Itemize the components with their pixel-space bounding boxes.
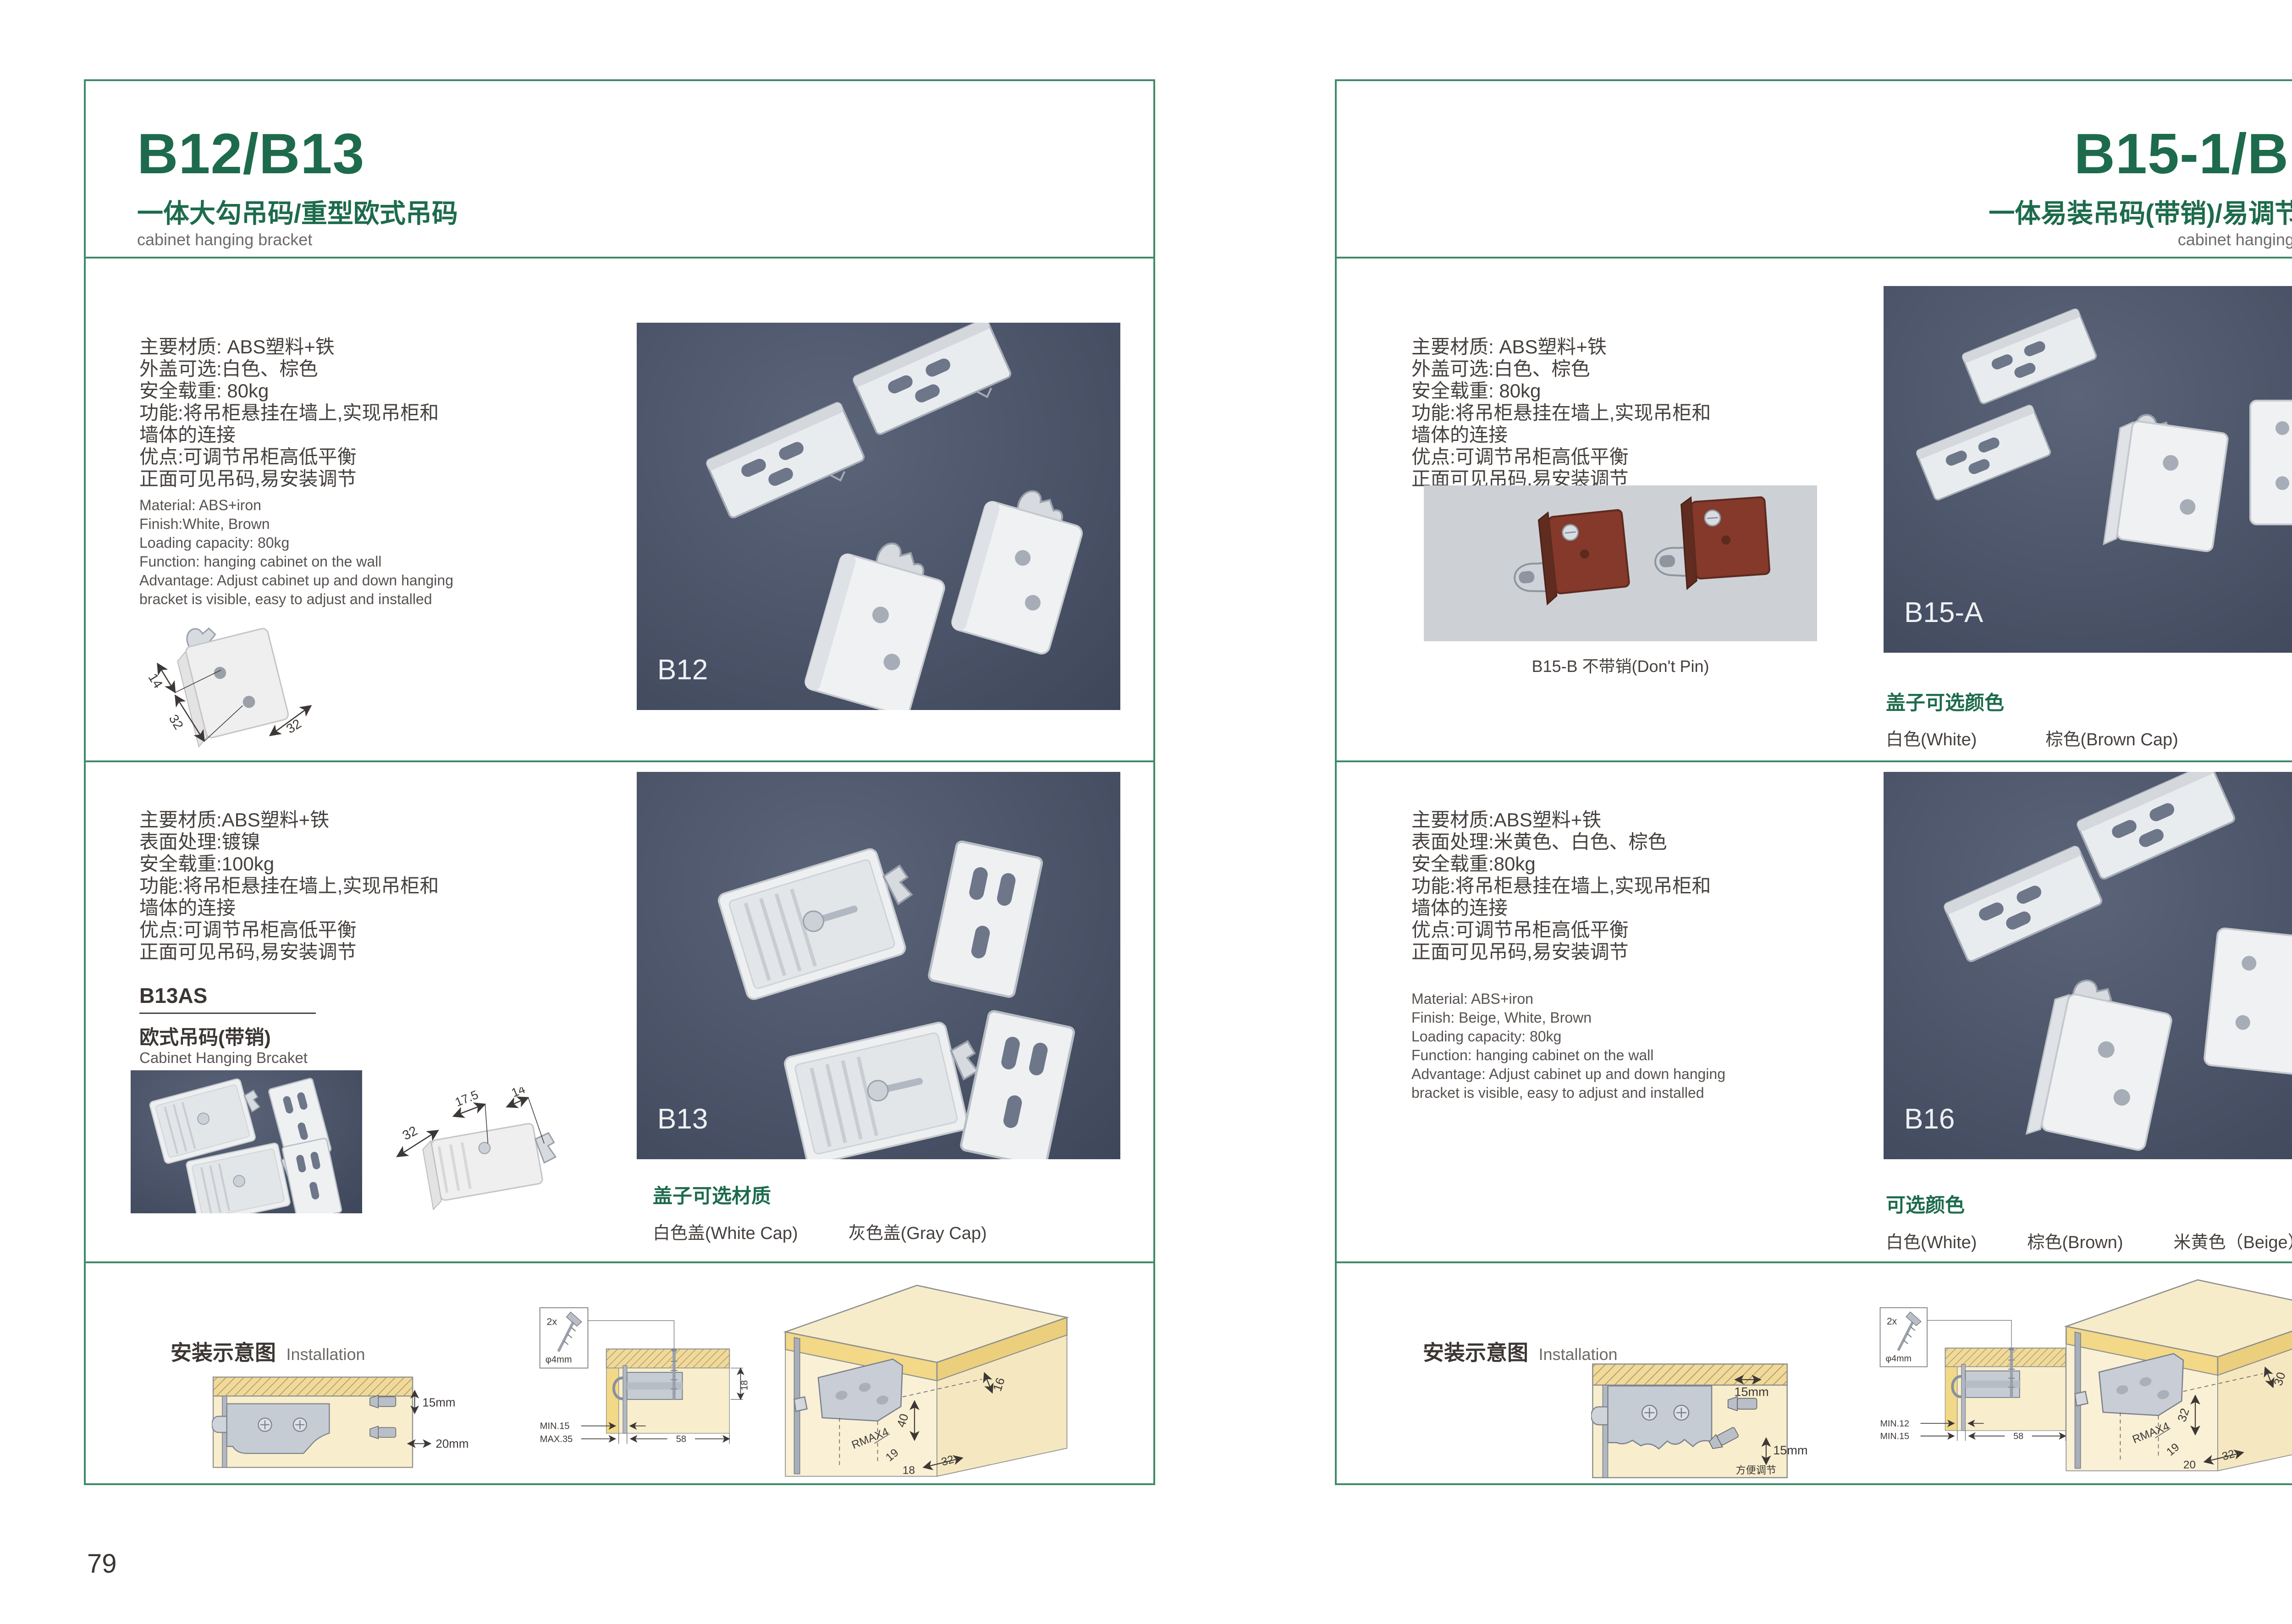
b13-photo-scene bbox=[637, 772, 1120, 1159]
installation-title: 安装示意图 Installation bbox=[171, 1336, 365, 1366]
spec-line: 安全载重: 80kg bbox=[1411, 380, 1711, 402]
caps-options: 白色盖(White Cap) 灰色盖(Gray Cap) bbox=[653, 1219, 1037, 1244]
brown-bracket-icon bbox=[1651, 492, 1770, 591]
dim-label: 15mm bbox=[1734, 1385, 1769, 1399]
hanging-bracket-icon bbox=[2250, 401, 2292, 524]
spec-line: 功能:将吊柜悬挂在墙上,实现吊柜和 bbox=[1411, 875, 1711, 897]
b16-product-photo: B16 bbox=[1884, 772, 2292, 1159]
screw-diameter: φ4mm bbox=[545, 1355, 572, 1365]
spec-line: Material: ABS+iron bbox=[1411, 990, 1725, 1008]
spec-line: 功能:将吊柜悬挂在墙上,实现吊柜和 bbox=[1411, 402, 1711, 424]
color-option: 棕色(Brown) bbox=[2027, 1228, 2123, 1253]
spec-line: 正面可见吊码,易安装调节 bbox=[139, 941, 439, 963]
screw-count: 2x bbox=[1887, 1316, 1897, 1327]
wall-rail-icon bbox=[2076, 772, 2236, 880]
b13as-photo-scene bbox=[131, 1070, 362, 1213]
divider bbox=[86, 1261, 1153, 1263]
cabinet-section bbox=[606, 1349, 730, 1433]
hanging-bracket-icon bbox=[950, 479, 1090, 655]
spec-line: Material: ABS+iron bbox=[139, 496, 453, 515]
spec-line: 墙体的连接 bbox=[139, 897, 439, 919]
installation-title-en: Installation bbox=[286, 1345, 365, 1364]
page-right: B15-1/B16 一体易装吊码(带销)/易调节吊码 cabinet hangi… bbox=[1335, 79, 2292, 1485]
b12-specs-cn: 主要材质: ABS塑料+铁 外盖可选:白色、棕色 安全载重: 80kg 功能:将… bbox=[139, 336, 439, 490]
spec-line: 优点:可调节吊柜高低平衡 bbox=[1411, 919, 1711, 941]
divider bbox=[86, 760, 1153, 762]
b12-install-side-diagram: 15mm 20mm bbox=[212, 1365, 478, 1470]
cap-option: 白色盖(White Cap) bbox=[653, 1219, 798, 1244]
page-caption: cabinet hanging bracket bbox=[137, 230, 312, 249]
product-label: B15-A bbox=[1904, 596, 1983, 629]
cabinet-perspective bbox=[785, 1285, 1067, 1476]
dim-label: MIN.15 bbox=[1880, 1431, 1910, 1441]
spec-line: Function: hanging cabinet on the wall bbox=[1411, 1046, 1725, 1065]
dim-label: MAX.35 bbox=[540, 1434, 573, 1444]
caps-title: 盖子可选颜色 bbox=[1886, 687, 2004, 716]
dim-label: 32 bbox=[284, 716, 304, 737]
model-name-en: Cabinet Hanging Brcaket bbox=[139, 1049, 308, 1067]
spec-line: bracket is visible, easy to adjust and i… bbox=[1411, 1084, 1725, 1102]
diagram-note: 方便调节 bbox=[1736, 1464, 1776, 1476]
b12-dimension-photo: 14 32 32 bbox=[129, 613, 340, 749]
page-caption: cabinet hanging bracket bbox=[2178, 230, 2292, 249]
spec-line: 墙体的连接 bbox=[139, 424, 439, 446]
spec-line: 功能:将吊柜悬挂在墙上,实现吊柜和 bbox=[139, 402, 439, 424]
wall-rail-icon bbox=[705, 402, 869, 527]
b15-specs-cn: 主要材质: ABS塑料+铁 外盖可选:白色、棕色 安全载重: 80kg 功能:将… bbox=[1411, 336, 1711, 490]
b12-photo-scene bbox=[637, 323, 1120, 710]
spec-line: 主要材质: ABS塑料+铁 bbox=[1411, 336, 1711, 358]
hanging-bracket-icon bbox=[2104, 411, 2229, 559]
mechanism-plate-icon bbox=[717, 841, 928, 1001]
cabinet-section bbox=[1591, 1364, 1787, 1478]
spec-line: 外盖可选:白色、棕色 bbox=[139, 358, 439, 380]
b15b-product-photo bbox=[1424, 485, 1817, 641]
spec-line: 安全载重:80kg bbox=[1411, 853, 1711, 875]
brown-bracket-icon bbox=[1508, 505, 1631, 607]
divider bbox=[1337, 257, 2292, 259]
spec-line: Loading capacity: 80kg bbox=[1411, 1027, 1725, 1046]
dim-label: 32 bbox=[166, 712, 186, 732]
cap-option: 灰色盖(Gray Cap) bbox=[848, 1219, 987, 1244]
dim-label: 18 bbox=[903, 1464, 915, 1477]
b12-install-perspective-diagram: 16 40 RMAX4 19 18 32 bbox=[757, 1277, 1078, 1477]
page-number-left: 79 bbox=[87, 1548, 117, 1579]
mechanism-plate-icon bbox=[783, 1016, 991, 1159]
page-subtitle: 一体大勾吊码/重型欧式吊码 bbox=[137, 193, 458, 230]
product-label: B16 bbox=[1904, 1103, 1955, 1135]
wall-rail-icon bbox=[1961, 308, 2097, 405]
spec-line: 功能:将吊柜悬挂在墙上,实现吊柜和 bbox=[139, 875, 439, 897]
dim-label: 20mm bbox=[435, 1438, 468, 1451]
b12-product-photo: B12 bbox=[637, 323, 1120, 710]
dim-label: 14 bbox=[145, 671, 165, 691]
spec-line: 表面处理:米黄色、白色、棕色 bbox=[1411, 831, 1711, 853]
model-underline bbox=[139, 1013, 316, 1014]
spec-line: 墙体的连接 bbox=[1411, 897, 1711, 919]
b16-install-perspective-diagram: 30 32 RMAX4 19 20 32 bbox=[2038, 1271, 2292, 1472]
b15b-photo-scene bbox=[1424, 485, 1817, 641]
hanging-bracket-icon bbox=[804, 531, 953, 710]
wall-rail-icon bbox=[928, 841, 1043, 998]
b12-install-section-diagram: 2x φ4mm 18 MIN.15 bbox=[535, 1306, 750, 1448]
spec-line: 主要材质: ABS塑料+铁 bbox=[139, 336, 439, 358]
cabinet-section bbox=[212, 1377, 413, 1467]
screw-spec-box: 2x φ4mm bbox=[540, 1308, 588, 1368]
page-title: B15-1/B16 bbox=[2074, 121, 2292, 187]
divider bbox=[86, 257, 1153, 259]
page-subtitle: 一体易装吊码(带销)/易调节吊码 bbox=[1989, 193, 2292, 230]
model-code: B13AS bbox=[139, 983, 207, 1008]
colors-options: 白色(White) 棕色(Brown) 米黄色（Beige） bbox=[1886, 1228, 2292, 1253]
b13as-product-photo bbox=[131, 1070, 362, 1213]
wall-rail-icon bbox=[1916, 404, 2051, 501]
installation-title-cn: 安装示意图 bbox=[171, 1341, 276, 1365]
wall-rail-icon bbox=[852, 323, 1016, 444]
spec-line: 正面可见吊码,易安装调节 bbox=[139, 468, 439, 490]
installation-title: 安装示意图 Installation bbox=[1423, 1336, 1618, 1366]
spec-line: Loading capacity: 80kg bbox=[139, 534, 453, 552]
screw-diameter: φ4mm bbox=[1885, 1354, 1912, 1364]
wall-rail-icon bbox=[1943, 845, 2103, 963]
caps-title: 盖子可选材质 bbox=[653, 1180, 771, 1209]
spec-line: Finish: Beige, White, Brown bbox=[1411, 1008, 1725, 1027]
dim-label: 58 bbox=[2013, 1431, 2023, 1441]
hanging-bracket-icon bbox=[2027, 974, 2176, 1158]
dim-label: MIN.12 bbox=[1880, 1419, 1910, 1429]
b13-specs-cn: 主要材质:ABS塑料+铁 表面处理:镀镍 安全载重:100kg 功能:将吊柜悬挂… bbox=[139, 809, 439, 963]
dim-label: 20 bbox=[2183, 1459, 2196, 1471]
spec-line: 安全载重:100kg bbox=[139, 853, 439, 875]
spec-line: 墙体的连接 bbox=[1411, 424, 1711, 446]
product-label: B12 bbox=[657, 654, 708, 686]
product-label: B13 bbox=[657, 1103, 708, 1135]
b16-specs-en: Material: ABS+iron Finish: Beige, White,… bbox=[1411, 990, 1725, 1102]
dim-label: 17.5 bbox=[453, 1088, 480, 1109]
bracket-photo bbox=[171, 613, 291, 747]
dim-label: 15mm bbox=[422, 1397, 455, 1409]
b15-install-side-diagram: 15mm 15mm 方便调节 bbox=[1591, 1349, 1848, 1481]
model-name-cn: 欧式吊码(带销) bbox=[139, 1022, 271, 1050]
spec-line: Advantage: Adjust cabinet up and down ha… bbox=[1411, 1065, 1725, 1084]
cabinet-perspective bbox=[2066, 1280, 2292, 1471]
leader-line bbox=[1927, 1321, 2011, 1348]
leader-line bbox=[588, 1321, 674, 1349]
colors-title: 可选颜色 bbox=[1886, 1189, 1965, 1218]
b16-photo-scene bbox=[1884, 772, 2292, 1159]
spec-line: 主要材质:ABS塑料+铁 bbox=[1411, 809, 1711, 831]
spec-line: 优点:可调节吊柜高低平衡 bbox=[139, 919, 439, 941]
color-option: 米黄色（Beige） bbox=[2173, 1228, 2292, 1253]
dim-label: MIN.15 bbox=[540, 1421, 570, 1431]
hanging-bracket-icon bbox=[2204, 928, 2292, 1076]
dim-label: 14 bbox=[509, 1087, 527, 1100]
caps-options: 白色(White) 棕色(Brown Cap) bbox=[1886, 725, 2247, 750]
spec-line: 外盖可选:白色、棕色 bbox=[1411, 358, 1711, 380]
screw-spec-box: 2x φ4mm bbox=[1880, 1308, 1928, 1367]
spec-line: bracket is visible, easy to adjust and i… bbox=[139, 590, 453, 609]
spec-line: 优点:可调节吊柜高低平衡 bbox=[139, 446, 439, 468]
wall-rail-icon bbox=[960, 1010, 1075, 1159]
spec-line: 正面可见吊码,易安装调节 bbox=[1411, 941, 1711, 963]
b13-dimension-photo: 32 17.5 14 bbox=[379, 1087, 581, 1214]
spec-line: Advantage: Adjust cabinet up and down ha… bbox=[139, 571, 453, 590]
wall-rail-icon bbox=[282, 1138, 342, 1213]
divider bbox=[1337, 760, 2292, 762]
dim-label: 32 bbox=[400, 1123, 420, 1143]
dim-label: 18 bbox=[739, 1380, 749, 1390]
page-left: B12/B13 一体大勾吊码/重型欧式吊码 cabinet hanging br… bbox=[84, 79, 1155, 1485]
divider bbox=[1337, 1261, 2292, 1263]
spec-line: 表面处理:镀镍 bbox=[139, 831, 439, 853]
dim-label: 15mm bbox=[1773, 1443, 1807, 1457]
installation-title-cn: 安装示意图 bbox=[1423, 1341, 1528, 1365]
spec-line: 主要材质:ABS塑料+铁 bbox=[139, 809, 439, 831]
cap-option: 棕色(Brown Cap) bbox=[2045, 725, 2178, 750]
page-title: B12/B13 bbox=[137, 121, 364, 187]
b15b-caption: B15-B 不带销(Don't Pin) bbox=[1424, 653, 1817, 677]
b12-specs-en: Material: ABS+iron Finish:White, Brown L… bbox=[139, 496, 453, 609]
spec-line: 安全载重: 80kg bbox=[139, 380, 439, 402]
b16-specs-cn: 主要材质:ABS塑料+铁 表面处理:米黄色、白色、棕色 安全载重:80kg 功能… bbox=[1411, 809, 1711, 963]
spec-line: Finish:White, Brown bbox=[139, 515, 453, 534]
spec-line: Function: hanging cabinet on the wall bbox=[139, 552, 453, 571]
screw-count: 2x bbox=[547, 1316, 557, 1327]
cap-option: 白色(White) bbox=[1886, 725, 1977, 750]
dim-label: 58 bbox=[676, 1434, 686, 1444]
b15a-product-photo: B15-A bbox=[1884, 286, 2292, 653]
catalog-spread: B12/B13 一体大勾吊码/重型欧式吊码 cabinet hanging br… bbox=[0, 0, 2292, 1624]
spec-line: 优点:可调节吊柜高低平衡 bbox=[1411, 446, 1711, 468]
color-option: 白色(White) bbox=[1886, 1228, 1977, 1253]
b13-product-photo: B13 bbox=[637, 772, 1120, 1159]
